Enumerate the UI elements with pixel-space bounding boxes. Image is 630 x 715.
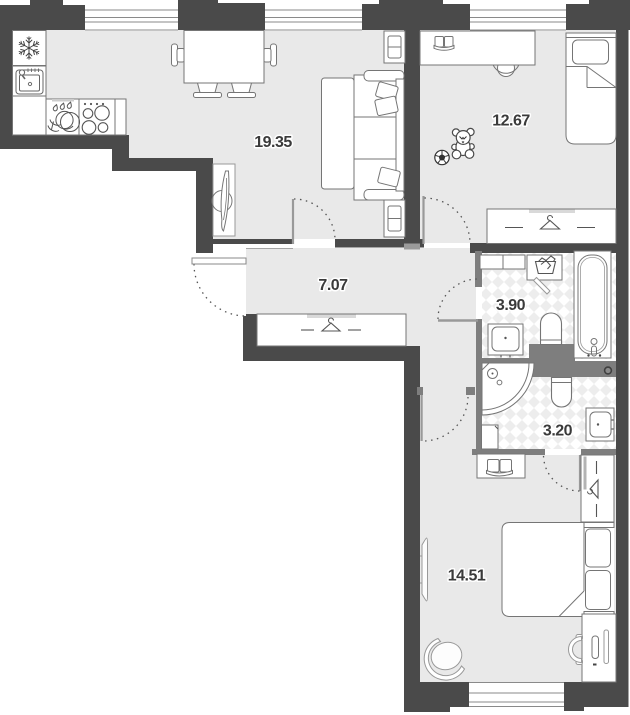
svg-text:12.67: 12.67 bbox=[492, 113, 530, 130]
svg-text:14.51: 14.51 bbox=[448, 568, 486, 585]
svg-text:3.20: 3.20 bbox=[543, 423, 573, 440]
svg-text:7.07: 7.07 bbox=[318, 277, 348, 294]
svg-text:3.90: 3.90 bbox=[496, 297, 526, 314]
svg-text:19.35: 19.35 bbox=[254, 134, 292, 151]
